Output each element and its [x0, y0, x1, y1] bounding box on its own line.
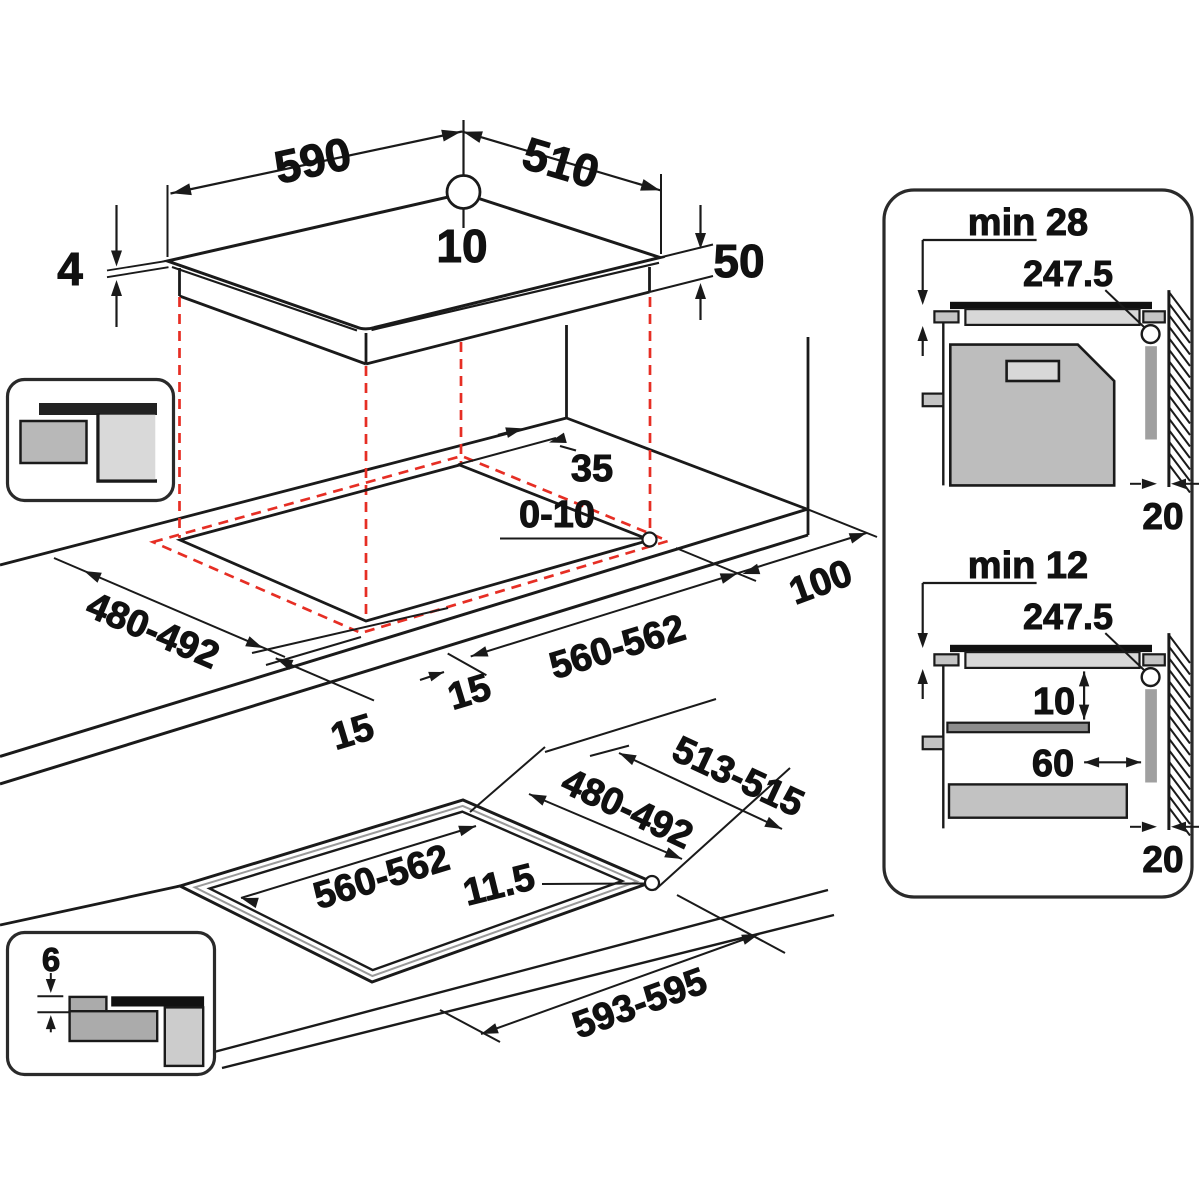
svg-text:10: 10 [436, 220, 487, 272]
svg-text:50: 50 [713, 235, 764, 287]
svg-text:247.5: 247.5 [1023, 596, 1113, 637]
svg-text:60: 60 [1032, 743, 1074, 785]
svg-text:min 28: min 28 [968, 202, 1088, 244]
svg-text:4: 4 [57, 243, 83, 295]
svg-text:0-10: 0-10 [519, 494, 595, 536]
svg-text:20: 20 [1142, 496, 1183, 537]
svg-text:10: 10 [1033, 681, 1075, 723]
svg-text:min 12: min 12 [968, 545, 1088, 587]
svg-text:35: 35 [571, 448, 613, 490]
svg-text:20: 20 [1142, 839, 1183, 880]
svg-text:6: 6 [42, 941, 60, 978]
svg-text:247.5: 247.5 [1023, 253, 1113, 294]
